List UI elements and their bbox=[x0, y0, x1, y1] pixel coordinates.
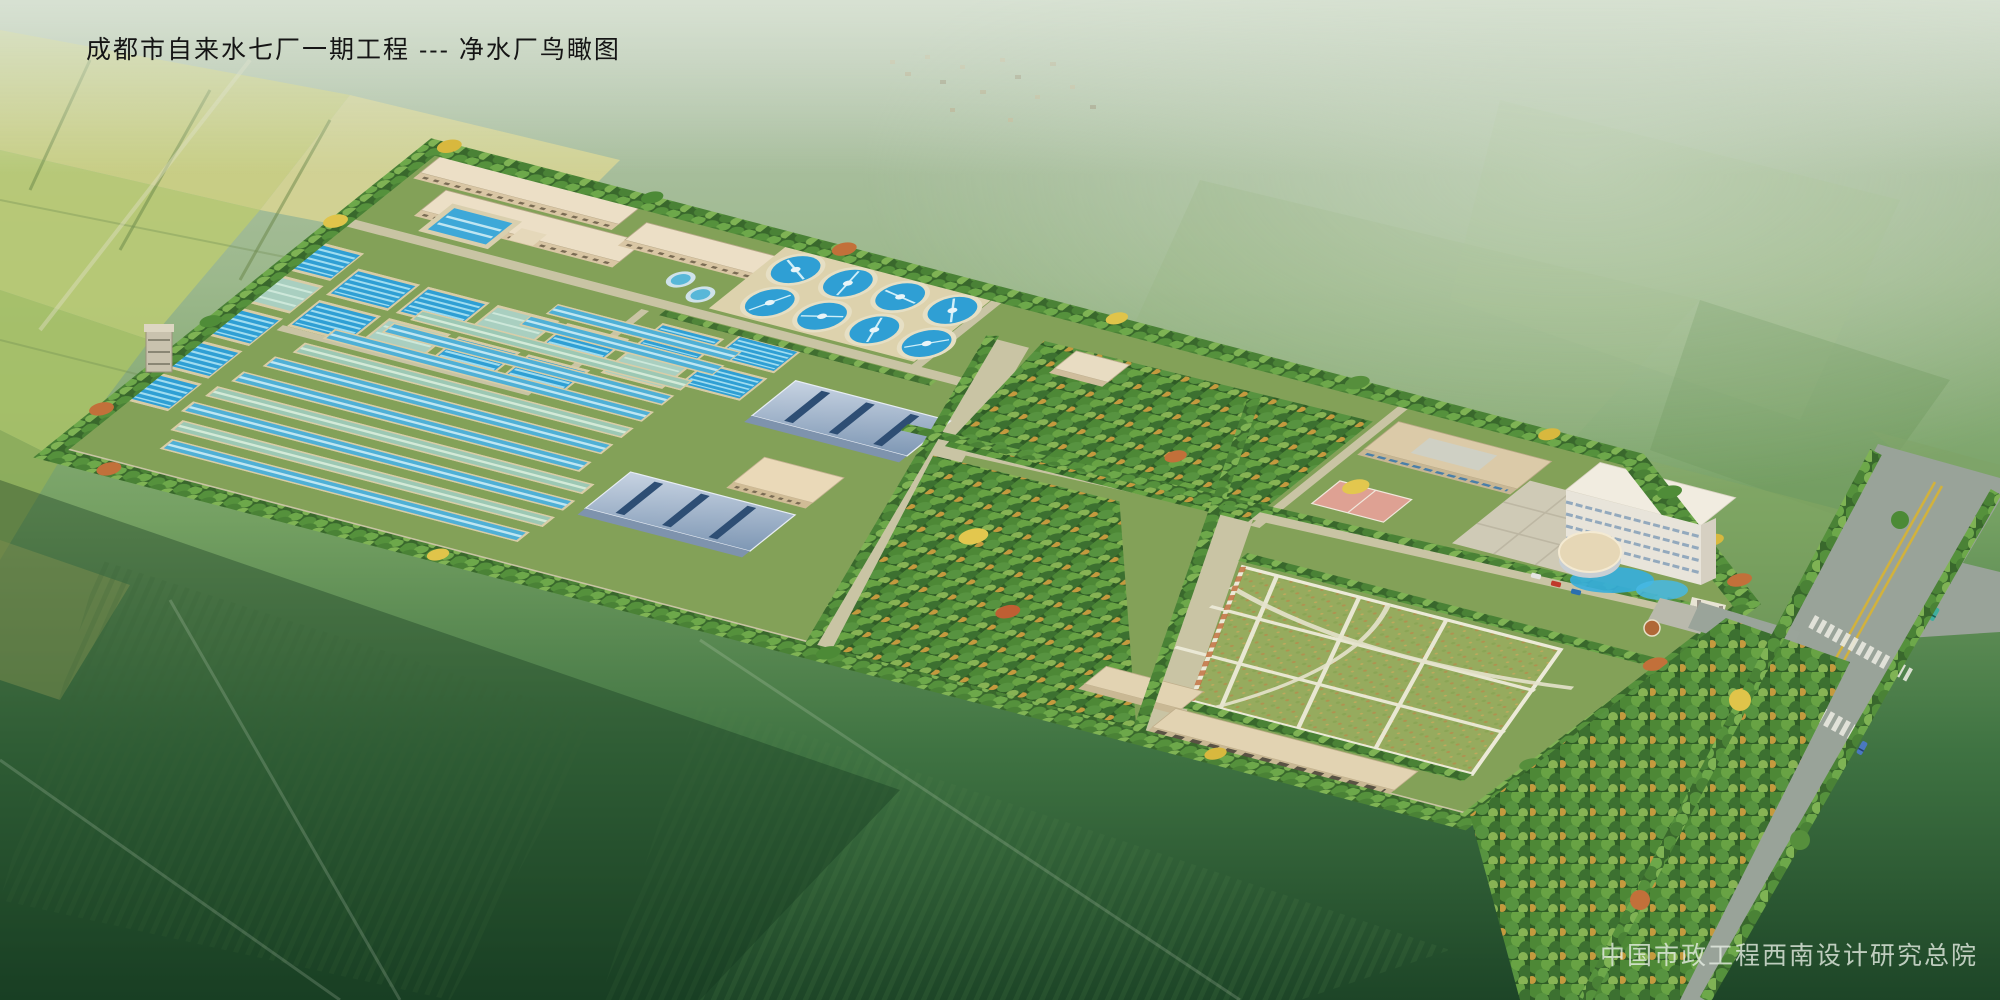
design-institute-credit: 中国市政工程西南设计研究总院 bbox=[1600, 936, 1978, 972]
aerial-rendering bbox=[0, 0, 2000, 1000]
gate-flower-medallion bbox=[1644, 620, 1660, 636]
round-pavilion bbox=[1559, 532, 1621, 578]
water-tower bbox=[144, 324, 174, 372]
rendering-canvas: 成都市自来水七厂一期工程 --- 净水厂鸟瞰图 中国市政工程西南设计研究总院 bbox=[0, 0, 2000, 1000]
page-title: 成都市自来水七厂一期工程 --- 净水厂鸟瞰图 bbox=[86, 30, 621, 66]
